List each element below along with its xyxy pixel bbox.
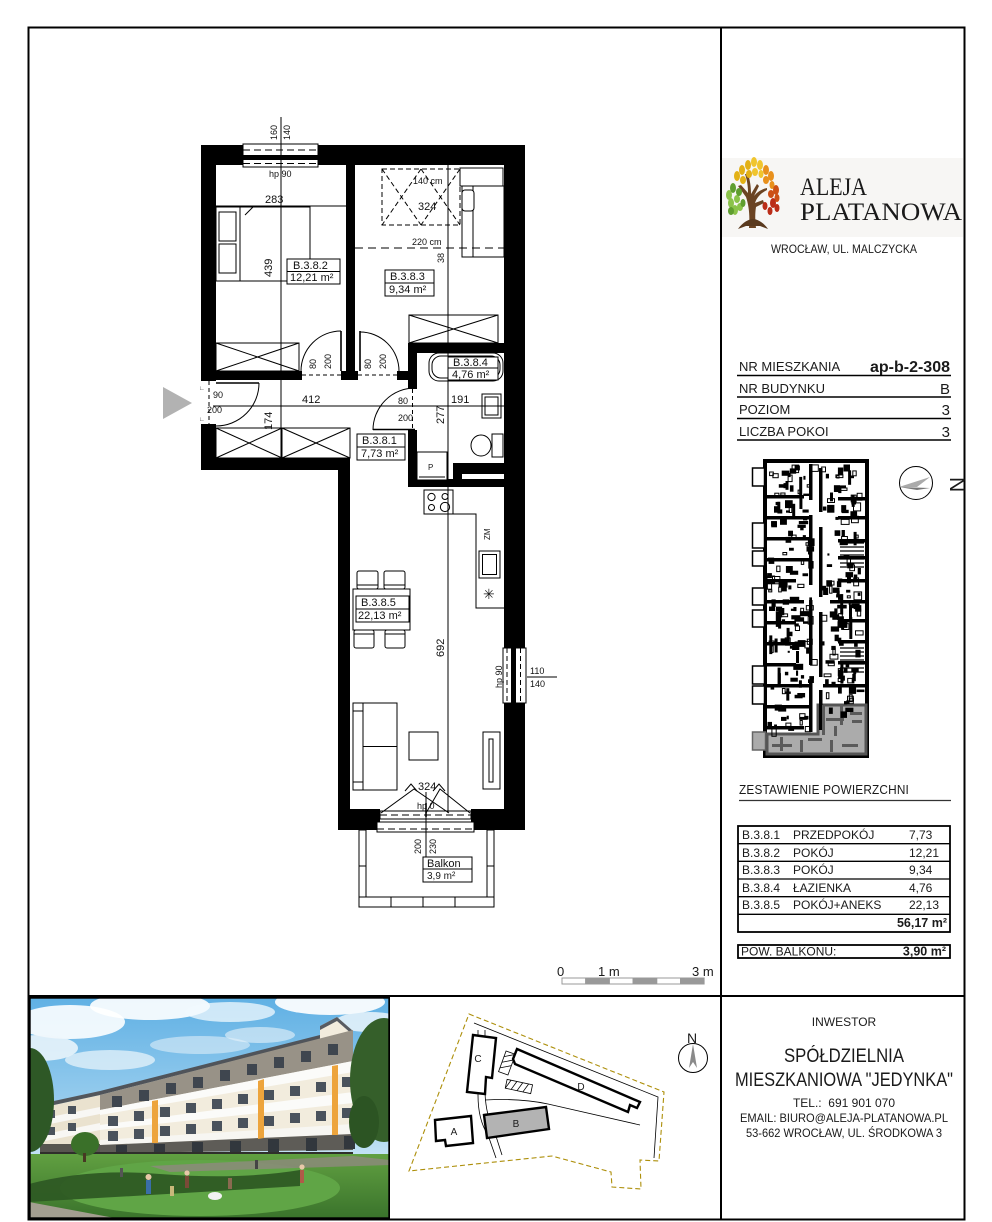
svg-text:B.3.8.2: B.3.8.2 (742, 846, 780, 860)
svg-text:∟: ∟ (199, 417, 205, 423)
svg-text:110: 110 (530, 666, 544, 676)
svg-text:B.3.8.2: B.3.8.2 (293, 260, 328, 272)
svg-text:✳: ✳ (483, 586, 495, 602)
svg-text:9,34 m²: 9,34 m² (389, 284, 427, 296)
svg-text:SPÓŁDZIELNIA: SPÓŁDZIELNIA (784, 1045, 904, 1067)
svg-text:3,90 m²: 3,90 m² (903, 945, 946, 959)
svg-text:324: 324 (418, 201, 436, 213)
svg-text:38: 38 (436, 253, 446, 263)
svg-text:0: 0 (557, 964, 564, 979)
svg-text:200: 200 (398, 413, 413, 423)
svg-text:B: B (940, 381, 950, 398)
svg-text:ALEJA: ALEJA (800, 174, 867, 201)
svg-text:hp 90: hp 90 (494, 665, 504, 688)
svg-text:12,21: 12,21 (909, 846, 939, 860)
svg-text:B.3.8.1: B.3.8.1 (742, 828, 780, 842)
svg-text:56,17 m²: 56,17 m² (897, 916, 947, 930)
svg-text:80: 80 (363, 359, 373, 369)
svg-text:1 m: 1 m (598, 964, 620, 979)
svg-text:LICZBA POKOI: LICZBA POKOI (739, 424, 829, 439)
svg-text:174: 174 (263, 412, 275, 430)
svg-text:80: 80 (398, 396, 408, 406)
svg-text:220 cm: 220 cm (412, 237, 442, 247)
svg-text:4,76 m²: 4,76 m² (452, 369, 490, 381)
svg-text:160: 160 (269, 125, 279, 140)
svg-text:C: C (474, 1054, 481, 1065)
svg-text:191: 191 (451, 394, 469, 406)
svg-text:B.3.8.3: B.3.8.3 (742, 863, 780, 877)
svg-text:200: 200 (323, 354, 333, 369)
svg-text:B.3.8.4: B.3.8.4 (453, 357, 488, 369)
svg-text:140: 140 (282, 125, 292, 140)
svg-text:POW. BALKONU:: POW. BALKONU: (741, 945, 836, 959)
svg-text:439: 439 (263, 259, 275, 277)
svg-text:∟: ∟ (199, 386, 205, 392)
svg-text:230: 230 (428, 839, 438, 854)
svg-text:INWESTOR: INWESTOR (812, 1015, 877, 1029)
svg-text:PLATANOWA: PLATANOWA (800, 199, 962, 226)
svg-text:80: 80 (308, 359, 318, 369)
svg-text:ŁAZIENKA: ŁAZIENKA (793, 881, 851, 895)
svg-text:3 m: 3 m (692, 964, 714, 979)
svg-text:POZIOM: POZIOM (739, 402, 790, 417)
svg-text:P: P (428, 463, 433, 472)
svg-text:692: 692 (435, 639, 447, 657)
svg-text:ap-b-2-308: ap-b-2-308 (870, 359, 950, 376)
svg-text:200: 200 (413, 839, 423, 854)
svg-text:ZM: ZM (483, 528, 492, 540)
svg-text:EMAIL: BIURO@ALEJA-PLATANOWA.P: EMAIL: BIURO@ALEJA-PLATANOWA.PL (740, 1111, 948, 1125)
svg-text:140 cm: 140 cm (413, 176, 443, 186)
svg-text:B: B (513, 1119, 520, 1130)
svg-text:B.3.8.1: B.3.8.1 (362, 435, 397, 447)
svg-text:B.3.8.5: B.3.8.5 (361, 597, 396, 609)
svg-text:7,73: 7,73 (909, 828, 933, 842)
svg-text:412: 412 (302, 394, 320, 406)
svg-text:22,13 m²: 22,13 m² (358, 610, 402, 622)
svg-text:7,73 m²: 7,73 m² (361, 448, 399, 460)
svg-text:WROCŁAW, UL. MALCZYCKA: WROCŁAW, UL. MALCZYCKA (771, 242, 917, 256)
svg-text:Balkon: Balkon (427, 858, 461, 870)
svg-text:POKÓJ: POKÓJ (793, 862, 834, 877)
svg-text:140: 140 (530, 679, 545, 689)
svg-text:TEL.: 691 901 070: TEL.: 691 901 070 (793, 1096, 895, 1110)
svg-text:PRZEDPOKÓJ: PRZEDPOKÓJ (793, 827, 874, 842)
svg-text:324: 324 (418, 781, 436, 793)
svg-text:12,21 m²: 12,21 m² (290, 272, 334, 284)
svg-text:200: 200 (378, 354, 388, 369)
svg-text:NR MIESZKANIA: NR MIESZKANIA (739, 359, 840, 374)
svg-text:277: 277 (435, 406, 447, 424)
svg-text:22,13: 22,13 (909, 898, 939, 912)
svg-text:283: 283 (265, 194, 283, 206)
svg-text:3: 3 (942, 402, 950, 419)
svg-text:90: 90 (213, 390, 223, 400)
svg-text:4,76: 4,76 (909, 881, 933, 895)
svg-text:3: 3 (942, 424, 950, 441)
svg-text:ZESTAWIENIE POWIERZCHNI: ZESTAWIENIE POWIERZCHNI (739, 782, 909, 797)
svg-text:D: D (577, 1082, 584, 1093)
svg-text:A: A (451, 1127, 458, 1138)
svg-text:NR BUDYNKU: NR BUDYNKU (739, 381, 825, 396)
svg-text:hp 90: hp 90 (269, 169, 292, 179)
svg-text:53-662 WROCŁAW, UL. ŚRODKOWA 3: 53-662 WROCŁAW, UL. ŚRODKOWA 3 (746, 1125, 942, 1140)
svg-text:B.3.8.5: B.3.8.5 (742, 898, 780, 912)
svg-text:B.3.8.3: B.3.8.3 (390, 271, 425, 283)
svg-text:POKÓJ: POKÓJ (793, 845, 834, 860)
svg-text:3,9 m²: 3,9 m² (427, 871, 456, 882)
svg-text:9,34: 9,34 (909, 863, 933, 877)
svg-text:POKÓJ+ANEKS: POKÓJ+ANEKS (793, 897, 881, 912)
svg-text:N: N (945, 477, 968, 492)
svg-text:MIESZKANIOWA "JEDYNKA": MIESZKANIOWA "JEDYNKA" (735, 1070, 953, 1091)
svg-text:B.3.8.4: B.3.8.4 (742, 881, 780, 895)
